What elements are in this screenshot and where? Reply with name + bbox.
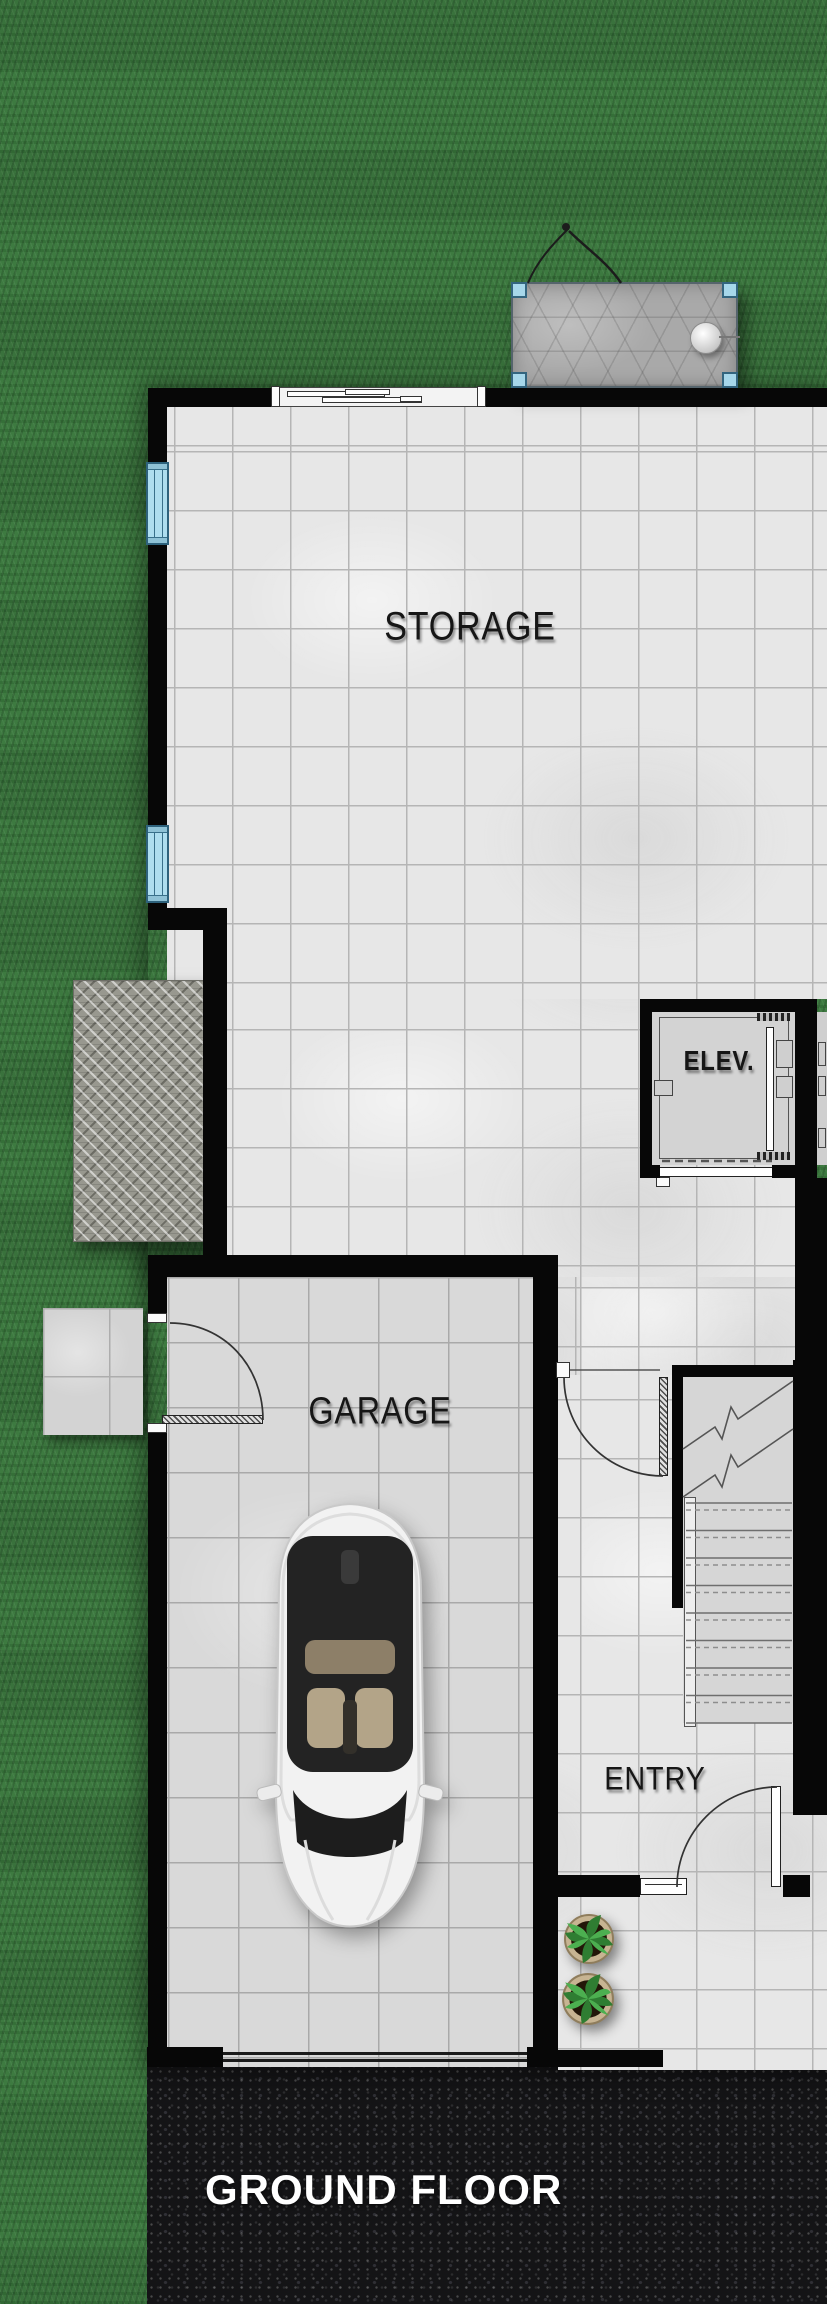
window-mullion [154,833,164,895]
window-west-1 [146,462,169,545]
wall-entry-south-jamb [783,1875,810,1897]
wall-garage-west-b [148,1423,167,2067]
window-west-2 [146,825,169,903]
sliding-door-jamb [477,386,486,407]
car-top-view [253,1490,447,1935]
wall-entry-south-left [540,1875,640,1897]
wall-elevator-east [795,999,817,1178]
floor-plan: STORAGE ELEV. GARAGE ENTRY GROUND FLOOR [0,0,827,2304]
elevator-door-bracket [656,1177,670,1187]
patio-corner-post [722,282,738,298]
window-sill [148,895,167,901]
elevator-label: ELEV. [677,1045,760,1077]
side-door-stoop [43,1308,143,1435]
sliding-door-panel [400,396,422,402]
wall-west-mid [203,930,227,1277]
diamond-plate-mat [73,980,205,1242]
patio-corner-post [511,282,527,298]
patio-corner-post [722,372,738,388]
potted-plant [563,1913,615,1965]
sliding-door-panel [345,389,390,395]
elevator-machine [776,1076,793,1098]
side-door-jamb [147,1313,167,1323]
storage-label-text: STORAGE [384,605,556,650]
elevator-label-text: ELEV. [684,1045,755,1077]
front-door-leaf [771,1786,781,1887]
garage-door-line [223,2059,527,2062]
wall-elevator-west [640,999,652,1178]
floor-title: GROUND FLOOR [205,2166,562,2214]
garage-label: GARAGE [296,1391,465,1434]
car-rear-seat [305,1640,395,1674]
wall-east-column [795,1178,827,1365]
sliding-door-jamb [271,386,280,407]
patio-corner-post [511,372,527,388]
side-door-leaf [162,1415,263,1424]
storage-floor [167,403,827,999]
wall-elevator-north [640,999,817,1012]
entry-label-text: ENTRY [604,1761,706,1798]
elevator-handle [654,1080,673,1096]
elevator-rail-block [757,1013,790,1021]
sidelight-line [645,1884,682,1885]
car-front-seat [307,1688,345,1748]
wall-stair-east [793,1360,827,1815]
stair-flight [683,1377,793,1723]
hall-floor [558,1277,795,1375]
wall-garage-east [533,1255,558,2067]
elevator-rail-block [757,1152,790,1160]
stair-handrail [684,1497,696,1727]
shaft-equipment [818,1042,826,1066]
hall-door-leaf [659,1377,668,1476]
wall-garage-north [148,1255,558,1277]
elevator-door-track [654,1167,776,1177]
car-center-console [343,1700,357,1754]
garage-door-line [223,2052,527,2055]
patio-table [690,322,722,354]
wall-stair-west [672,1365,683,1608]
wall-north-right [485,388,827,407]
entry-sidelight [640,1878,687,1895]
car-front-seat [355,1688,393,1748]
window-sill [148,537,167,543]
wall-stair-north [672,1365,793,1377]
wall-elevator-south-left [640,1165,660,1178]
hall-door-jamb [556,1362,570,1378]
elevator-machine [776,1040,793,1068]
window-mullion [154,470,164,537]
wall-porch-south [540,2050,663,2067]
side-door-jamb [147,1423,167,1433]
elevator-guide-rail [766,1027,774,1151]
potted-plant [561,1972,615,2026]
garage-label-text: GARAGE [308,1391,451,1434]
entry-label: ENTRY [599,1761,712,1798]
car-rear-console [341,1550,359,1584]
shaft-equipment [818,1076,826,1096]
storage-label: STORAGE [369,605,571,650]
wall-west-jog [148,908,227,930]
wall-garage-door-jamb-left [147,2047,223,2067]
shaft-equipment [818,1128,826,1148]
